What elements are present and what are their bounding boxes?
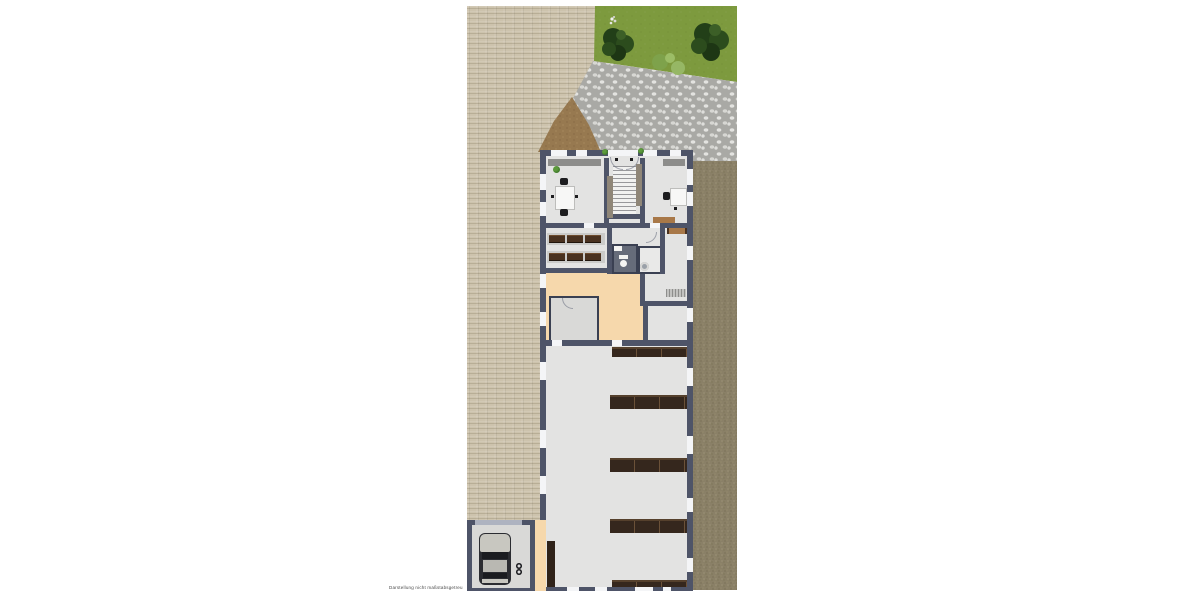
door-opening bbox=[595, 587, 607, 591]
office-chair bbox=[663, 192, 670, 200]
entrance-opening bbox=[608, 150, 638, 156]
site-plan bbox=[467, 6, 737, 591]
tree-icon bbox=[602, 28, 634, 61]
bench bbox=[549, 235, 565, 243]
bench bbox=[549, 253, 565, 261]
interior-wall bbox=[643, 306, 648, 344]
shelf-row bbox=[610, 519, 687, 533]
window bbox=[687, 246, 693, 260]
window bbox=[687, 436, 693, 454]
interior-wall bbox=[540, 268, 607, 273]
bench bbox=[585, 235, 601, 243]
marker-dot bbox=[516, 569, 522, 575]
window bbox=[540, 174, 546, 190]
car-top-view bbox=[479, 533, 511, 585]
toilet-tank bbox=[619, 255, 628, 259]
window bbox=[540, 362, 546, 380]
window bbox=[540, 274, 546, 288]
window bbox=[670, 150, 681, 156]
window bbox=[687, 169, 693, 185]
radiator bbox=[666, 289, 686, 297]
bush-icon bbox=[652, 53, 685, 75]
wall-shelf bbox=[547, 541, 555, 591]
building-floorplan bbox=[540, 150, 693, 591]
paved-court-left bbox=[467, 6, 540, 520]
bench bbox=[585, 253, 601, 261]
desk-accessory bbox=[551, 195, 554, 198]
desk bbox=[670, 188, 687, 206]
tree-icon bbox=[691, 23, 729, 61]
bench bbox=[567, 253, 583, 261]
office-chair bbox=[560, 209, 568, 216]
window bbox=[687, 498, 693, 512]
window bbox=[687, 192, 693, 206]
interior-wall bbox=[660, 228, 665, 274]
wall-counter bbox=[548, 159, 601, 166]
door-opening bbox=[650, 223, 660, 228]
plant-icon bbox=[602, 149, 608, 155]
window bbox=[687, 308, 693, 322]
stair-strip bbox=[636, 164, 642, 206]
door-arc bbox=[646, 232, 657, 243]
car-trunk bbox=[482, 579, 508, 583]
window bbox=[540, 312, 546, 326]
shelf-row bbox=[612, 347, 687, 357]
window bbox=[540, 202, 546, 216]
flower-cluster-icon bbox=[610, 16, 617, 24]
sideboard bbox=[653, 217, 675, 223]
workshop-side-room bbox=[549, 296, 599, 346]
door-opening bbox=[552, 340, 562, 346]
sink-icon bbox=[614, 246, 622, 251]
landscape-trees bbox=[587, 6, 737, 96]
window bbox=[576, 150, 587, 156]
car-windshield bbox=[482, 552, 508, 559]
door-opening bbox=[612, 340, 622, 346]
garage-door-opening bbox=[475, 520, 522, 525]
plant-icon bbox=[553, 166, 560, 173]
round-basin-icon bbox=[640, 262, 649, 271]
bench bbox=[567, 235, 583, 243]
window bbox=[540, 476, 546, 494]
double-desk bbox=[555, 186, 575, 210]
car-hood bbox=[480, 534, 510, 552]
door-post bbox=[630, 158, 633, 161]
shelf-row bbox=[610, 458, 687, 472]
desk-accessory bbox=[674, 207, 677, 210]
door-opening bbox=[584, 223, 594, 228]
window bbox=[687, 368, 693, 386]
garage bbox=[467, 520, 535, 591]
door-post bbox=[615, 158, 618, 161]
shelf-row bbox=[610, 395, 687, 409]
plant-icon bbox=[638, 148, 644, 154]
wall-counter bbox=[663, 159, 685, 166]
window bbox=[643, 150, 657, 156]
disclaimer-text: Darstellung nicht maßstabsgetreu bbox=[389, 586, 463, 591]
door-opening bbox=[635, 587, 653, 591]
window bbox=[540, 430, 546, 448]
car-rear-window bbox=[483, 573, 507, 578]
desk-accessory bbox=[575, 195, 578, 198]
staircase bbox=[613, 166, 636, 214]
bench bbox=[667, 228, 687, 234]
side-corridor bbox=[535, 520, 546, 591]
toilet-icon bbox=[620, 260, 627, 267]
figure-eight-marker bbox=[516, 563, 523, 576]
door-opening bbox=[663, 587, 671, 591]
gravel-strip bbox=[693, 161, 737, 590]
window bbox=[551, 150, 567, 156]
window bbox=[687, 558, 693, 572]
door-opening bbox=[567, 587, 579, 591]
car-roof bbox=[483, 560, 507, 572]
office-chair bbox=[560, 178, 568, 185]
page: Darstellung nicht maßstabsgetreu bbox=[0, 0, 1200, 600]
